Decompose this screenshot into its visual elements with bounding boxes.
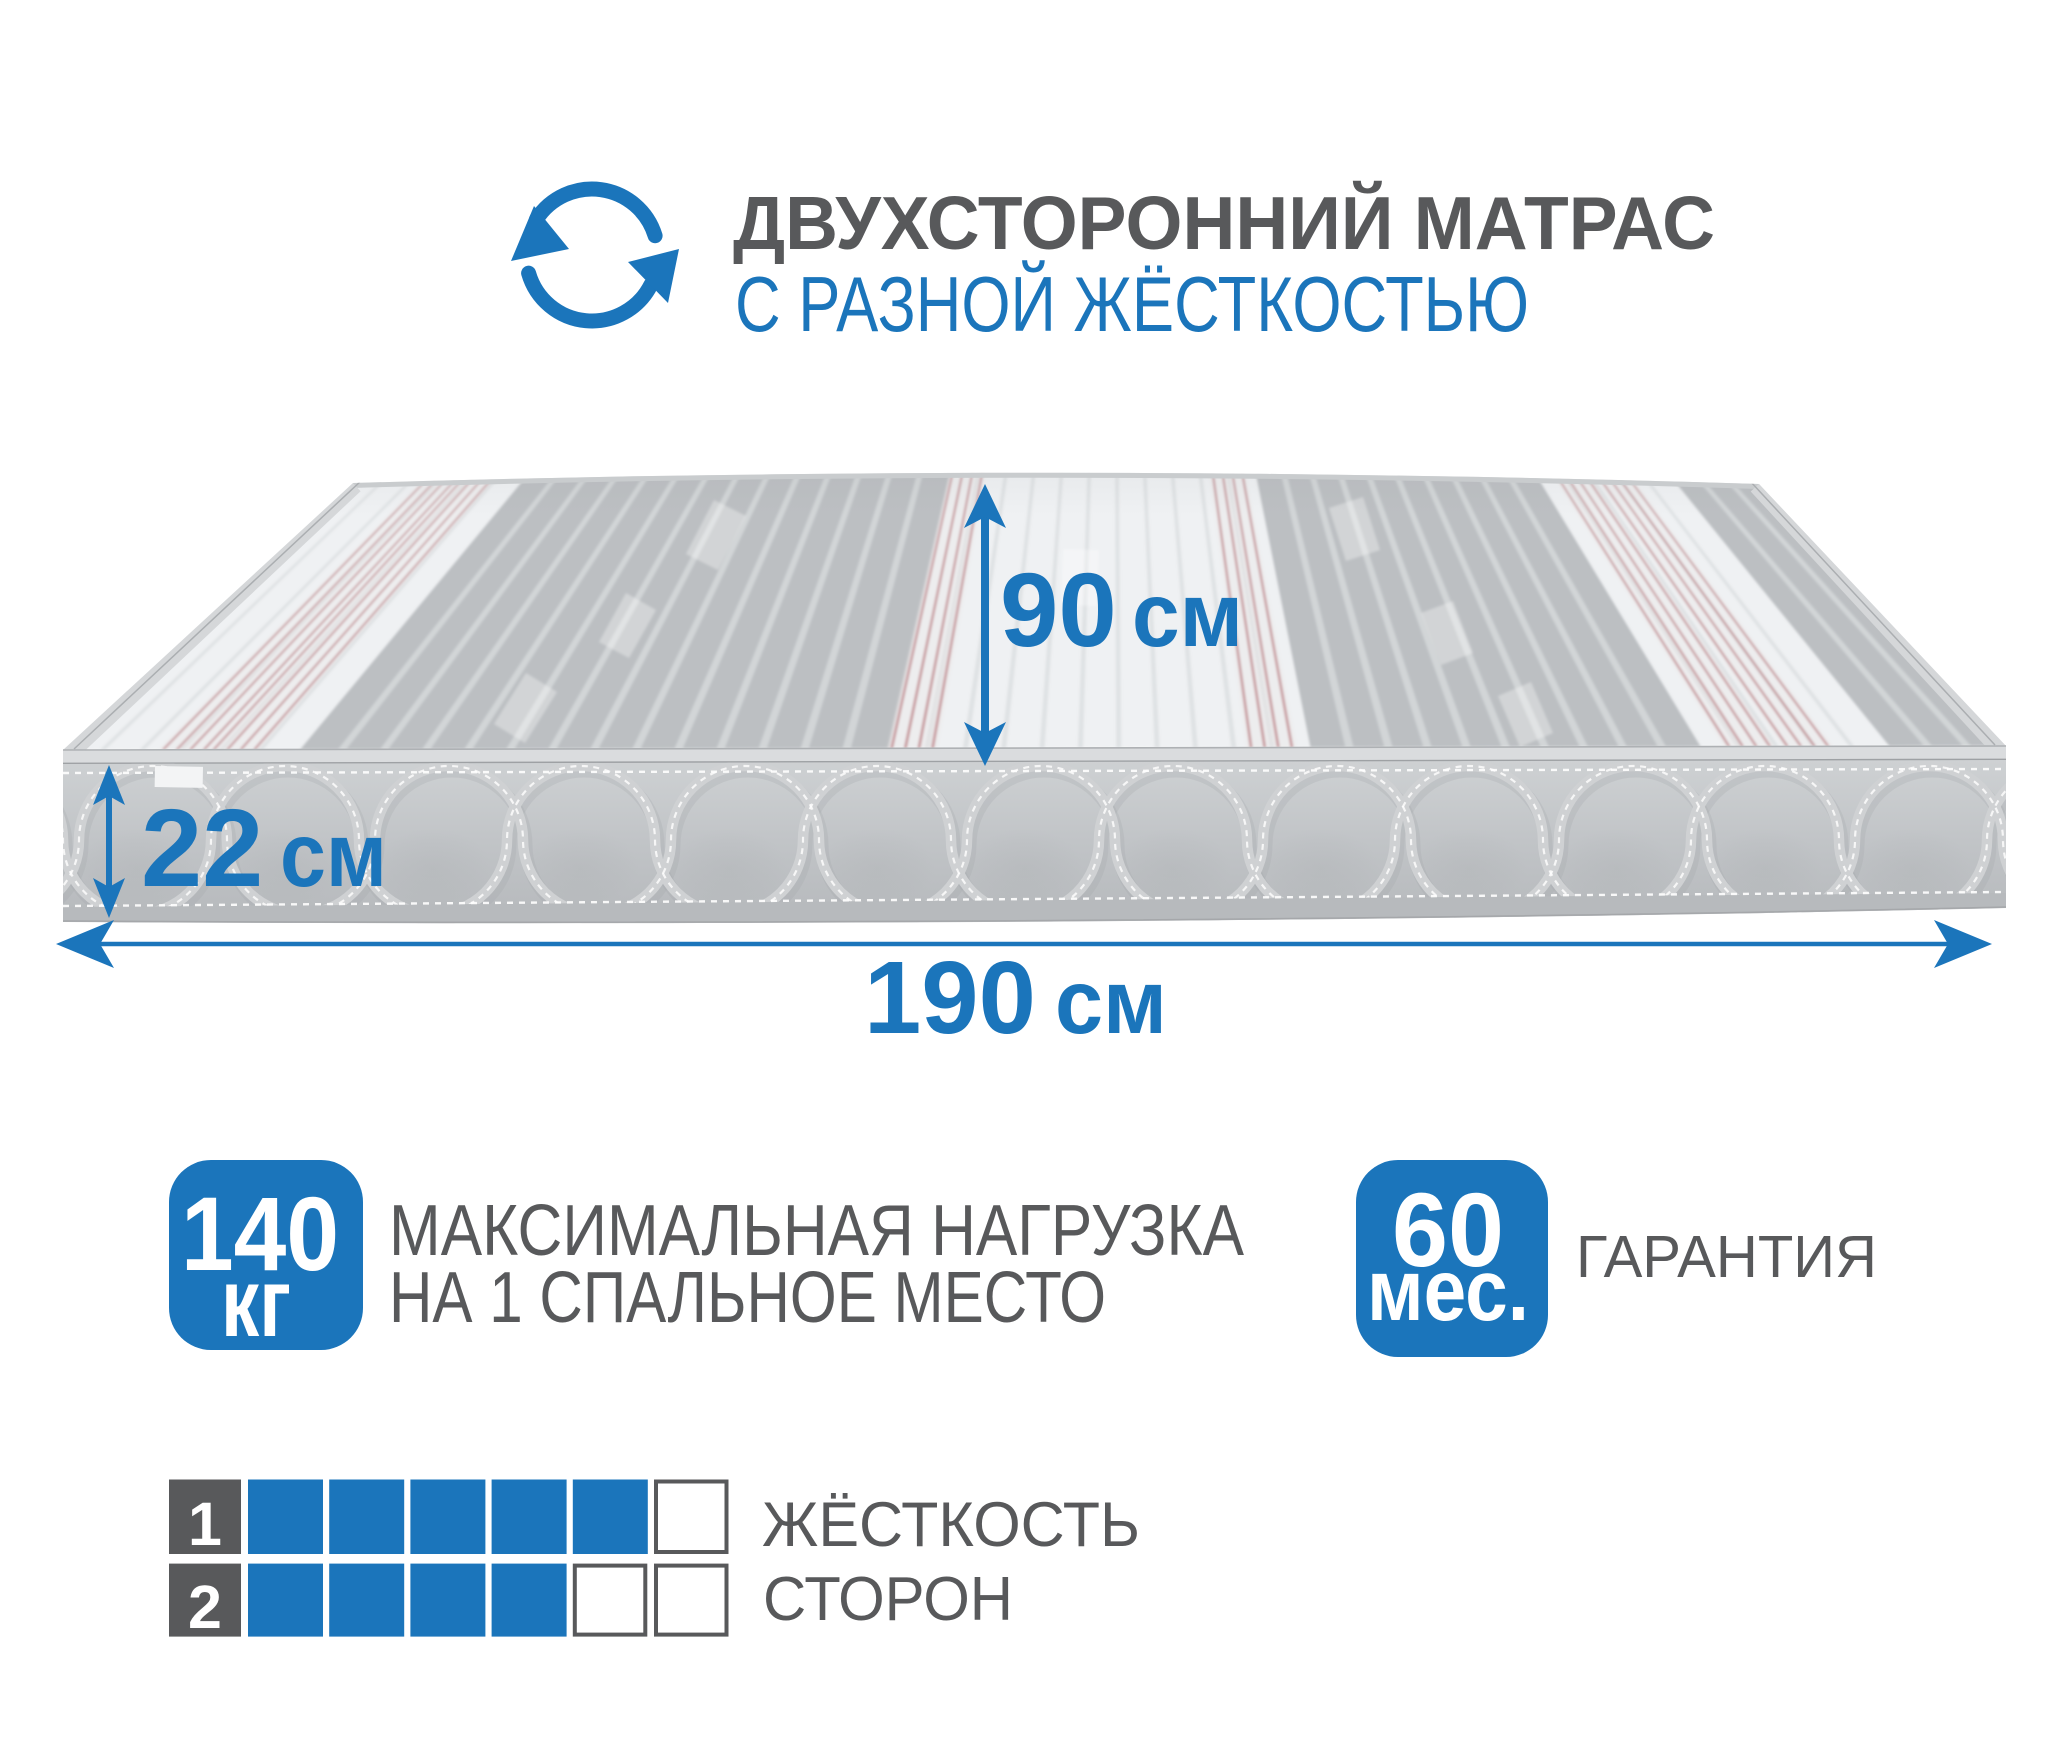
svg-text:ГАРАНТИЯ: ГАРАНТИЯ [1576,1224,1877,1290]
svg-text:1: 1 [188,1490,222,1558]
svg-text:2: 2 [188,1573,222,1641]
svg-text:ЖЁСТКОСТЬ: ЖЁСТКОСТЬ [762,1490,1140,1560]
svg-text:90: 90 [1000,552,1117,669]
svg-text:мес.: мес. [1367,1242,1529,1339]
svg-text:СТОРОН: СТОРОН [763,1565,1013,1634]
svg-text:см: см [1132,565,1243,666]
svg-text:22: 22 [141,787,263,910]
svg-text:ДВУХСТОРОННИЙ МАТРАС: ДВУХСТОРОННИЙ МАТРАС [733,181,1715,265]
svg-text:НА 1 СПАЛЬНОЕ МЕСТО: НА 1 СПАЛЬНОЕ МЕСТО [389,1258,1106,1338]
svg-text:см: см [1055,952,1167,1053]
svg-text:см: см [280,805,387,906]
svg-text:С РАЗНОЙ ЖЁСТКОСТЬЮ: С РАЗНОЙ ЖЁСТКОСТЬЮ [735,260,1529,348]
svg-text:кг: кг [221,1248,291,1357]
svg-text:190: 190 [864,940,1036,1055]
